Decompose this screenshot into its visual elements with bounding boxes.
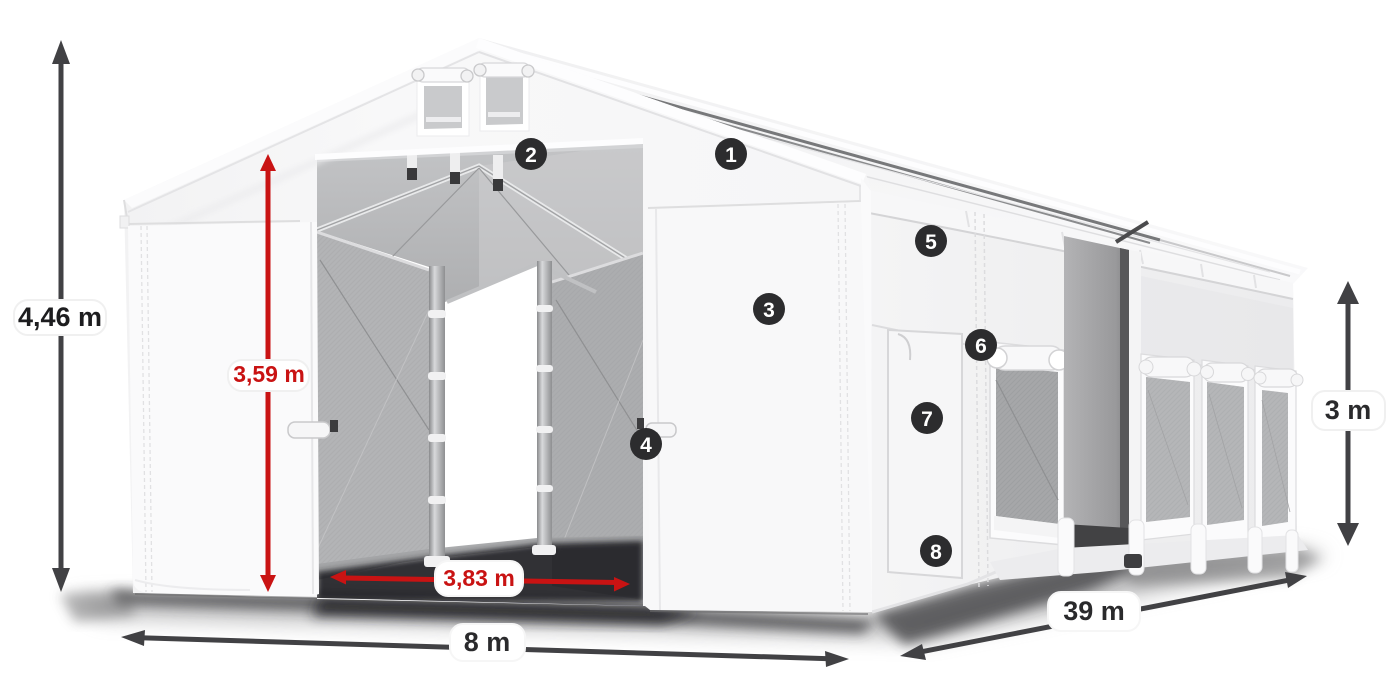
svg-text:3 m: 3 m (1325, 395, 1372, 425)
svg-text:3,59 m: 3,59 m (233, 361, 305, 387)
svg-text:8 m: 8 m (464, 627, 511, 657)
svg-text:6: 6 (975, 335, 987, 358)
svg-text:7: 7 (921, 408, 933, 431)
svg-text:8: 8 (930, 541, 942, 564)
svg-text:1: 1 (725, 144, 737, 167)
svg-text:3,83 m: 3,83 m (443, 565, 515, 591)
svg-text:3: 3 (763, 299, 775, 322)
svg-text:2: 2 (525, 144, 537, 167)
svg-text:4,46 m: 4,46 m (18, 302, 102, 332)
svg-text:4: 4 (640, 434, 652, 457)
svg-text:5: 5 (925, 231, 937, 254)
svg-text:39 m: 39 m (1063, 596, 1125, 626)
